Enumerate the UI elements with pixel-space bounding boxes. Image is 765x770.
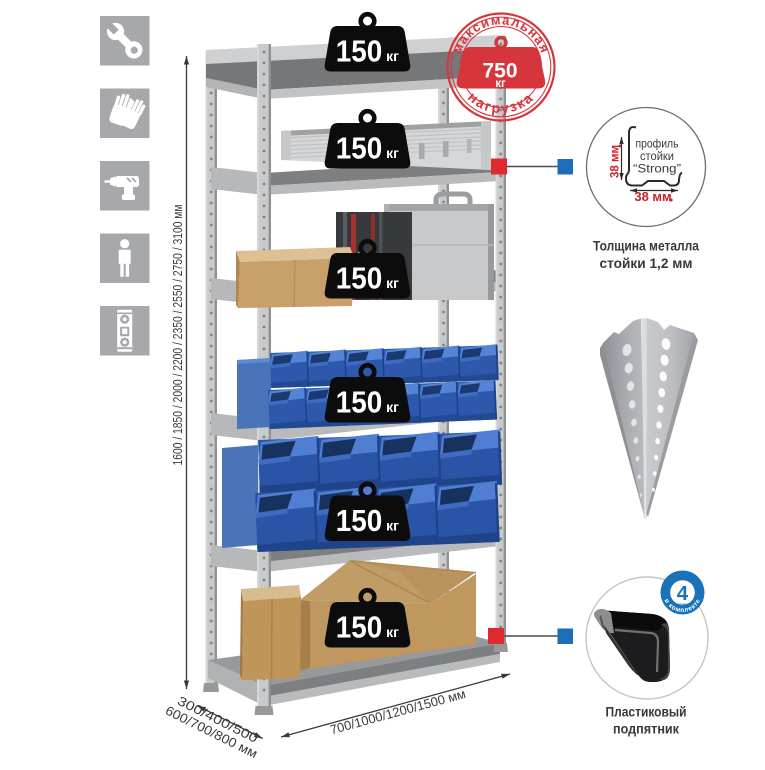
svg-text:150: 150 <box>336 34 383 69</box>
svg-text:150: 150 <box>336 610 383 645</box>
svg-text:штуки: штуки <box>677 603 688 607</box>
svg-text:кг: кг <box>386 624 399 640</box>
svg-text:Пластиковый: Пластиковый <box>606 704 687 720</box>
svg-text:стойки 1,2 мм: стойки 1,2 мм <box>600 255 693 271</box>
svg-text:кг: кг <box>386 275 399 291</box>
svg-text:38 мм: 38 мм <box>610 145 622 178</box>
svg-text:150: 150 <box>336 503 383 538</box>
svg-text:38 мм: 38 мм <box>634 189 671 204</box>
svg-text:150: 150 <box>336 131 383 166</box>
svg-text:150: 150 <box>336 385 383 420</box>
svg-text:кг: кг <box>386 145 399 161</box>
svg-text:кг: кг <box>495 78 506 90</box>
svg-text:1600 / 1850 / 2000 / 2200 / 23: 1600 / 1850 / 2000 / 2200 / 2350 / 2550 … <box>170 204 185 465</box>
svg-text:кг: кг <box>386 399 399 415</box>
svg-text:Толщина металла: Толщина металла <box>593 238 699 254</box>
svg-text:кг: кг <box>386 518 399 534</box>
svg-text:подпятник: подпятник <box>613 721 680 737</box>
svg-text:“Strong”: “Strong” <box>633 162 681 176</box>
svg-text:кг: кг <box>386 48 399 64</box>
svg-text:150: 150 <box>336 261 383 296</box>
